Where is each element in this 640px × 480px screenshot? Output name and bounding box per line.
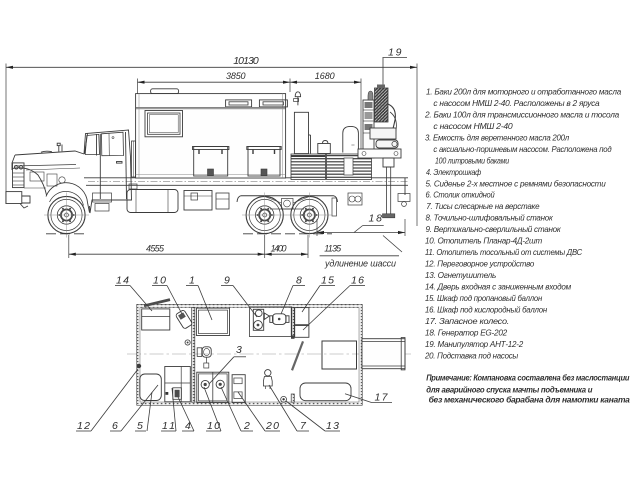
svg-text:20: 20: [265, 420, 279, 432]
svg-text:6. Столик откидной: 6. Столик откидной: [426, 190, 496, 200]
svg-text:5: 5: [137, 420, 143, 432]
svg-text:8: 8: [296, 275, 302, 287]
svg-text:15: 15: [321, 275, 334, 287]
svg-text:с насосом НМШ 2-40: с насосом НМШ 2-40: [433, 121, 513, 131]
svg-text:17. Запасное колесо.: 17. Запасное колесо.: [425, 316, 509, 326]
svg-text:2. Баки 100л для трансмиссионн: 2. Баки 100л для трансмиссионного масла …: [424, 109, 620, 119]
svg-text:3: 3: [236, 344, 242, 356]
svg-text:1135: 1135: [324, 244, 342, 254]
svg-text:10130: 10130: [233, 55, 259, 67]
svg-text:11: 11: [162, 420, 175, 432]
svg-text:19: 19: [388, 47, 402, 59]
svg-text:18: 18: [369, 213, 383, 225]
svg-text:14: 14: [116, 275, 129, 287]
svg-text:11. Отопитель тосольный от сис: 11. Отопитель тосольный от системы ДВС: [425, 247, 583, 257]
svg-text:8. Точильно-шлифовальный стано: 8. Точильно-шлифовальный станок: [426, 213, 554, 223]
svg-text:с аксиально-поршневым насосом.: с аксиально-поршневым насосом. Расположе…: [433, 144, 612, 154]
svg-text:18. Генератор ЕG-202: 18. Генератор ЕG-202: [425, 327, 508, 337]
svg-text:6: 6: [112, 420, 118, 432]
svg-text:Примечание: Компановка составл: Примечание: Компановка составлена без ма…: [426, 373, 630, 383]
svg-text:16. Шкаф под кислородный балло: 16. Шкаф под кислородный баллон: [425, 304, 548, 314]
svg-text:удлинение шасси: удлинение шасси: [324, 259, 396, 269]
svg-text:10: 10: [207, 420, 220, 432]
svg-text:12. Переговорное устройство: 12. Переговорное устройство: [425, 259, 535, 269]
svg-text:10. Отопитель Планар-4Д-2шт: 10. Отопитель Планар-4Д-2шт: [425, 236, 542, 246]
svg-text:4. Электрошкаф: 4. Электрошкаф: [426, 167, 481, 177]
svg-text:20. Подставка под насосы: 20. Подставка под насосы: [424, 350, 518, 360]
svg-text:10: 10: [153, 275, 166, 287]
svg-text:без механического барабана для: без механического барабана для намотки к…: [429, 395, 631, 405]
svg-text:1. Баки 200л для моторного и о: 1. Баки 200л для моторного и отработанно…: [426, 87, 622, 97]
svg-text:1680: 1680: [315, 71, 335, 81]
svg-text:1400: 1400: [271, 244, 287, 254]
svg-text:5. Сиденье 2-х местное с ремня: 5. Сиденье 2-х местное с ремнями безопас…: [426, 178, 607, 188]
svg-text:7: 7: [300, 420, 307, 432]
svg-text:3850: 3850: [226, 71, 246, 81]
svg-text:14. Дверь входная с заниженным: 14. Дверь входная с заниженным входом: [425, 282, 571, 292]
svg-text:с насосом НМШ 2-40. Расположен: с насосом НМШ 2-40. Расположены в 2 ярус…: [433, 98, 600, 108]
svg-text:15. Шкаф под пропановый баллон: 15. Шкаф под пропановый баллон: [425, 293, 543, 303]
svg-text:2: 2: [243, 420, 250, 432]
svg-text:12: 12: [77, 420, 90, 432]
svg-text:1: 1: [189, 275, 195, 287]
svg-text:100 литровыми баками: 100 литровыми баками: [435, 155, 509, 165]
svg-text:4555: 4555: [146, 244, 165, 254]
svg-text:для аварийного спуска мачты по: для аварийного спуска мачты подъемника и: [426, 384, 593, 394]
svg-text:9: 9: [224, 275, 230, 287]
svg-text:13: 13: [326, 420, 339, 432]
svg-text:19. Манипулятор АНТ-12-2: 19. Манипулятор АНТ-12-2: [425, 339, 524, 349]
svg-text:9. Вертикально-сверлильный ста: 9. Вертикально-сверлильный станок: [426, 224, 562, 234]
svg-text:17: 17: [375, 392, 389, 404]
svg-text:13. Огнетушитель: 13. Огнетушитель: [425, 270, 496, 280]
svg-text:3. Емкость для веретенного мас: 3. Емкость для веретенного масла 200л: [425, 132, 569, 142]
svg-text:7. Тисы слесарные на верстаке: 7. Тисы слесарные на верстаке: [426, 201, 540, 211]
svg-text:16: 16: [351, 275, 364, 287]
